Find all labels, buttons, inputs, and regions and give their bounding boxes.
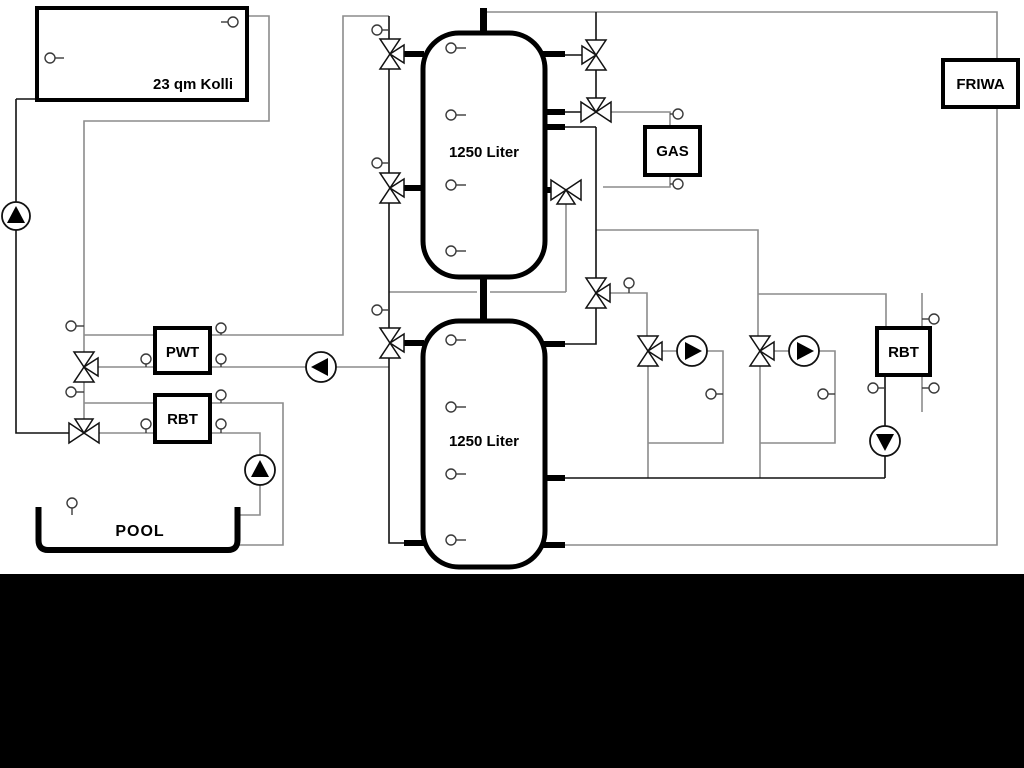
solar-pump (2, 202, 30, 230)
pool-label: POOL (115, 523, 164, 540)
valve-tank-upper-left-top (380, 39, 404, 69)
valve-tank-upper-left-mid (380, 173, 404, 203)
sensor-rbt-right-return (868, 383, 886, 393)
buffer-tank-lower: 1250 Liter (423, 321, 545, 567)
gas-boiler: GAS (645, 127, 700, 175)
sensor-gas-flow (670, 109, 683, 119)
sensor-rbt-top-right (216, 390, 226, 403)
sensor-gas-return (670, 179, 683, 189)
sensor-valve-b (372, 158, 389, 168)
solar-collector: 23 qm Kolli (37, 8, 247, 100)
sensor-pwt-top-right (216, 323, 226, 335)
dhw-pipe (486, 12, 997, 545)
valve-pwt (74, 352, 98, 382)
sensor-pwt-bottom-right (216, 354, 226, 367)
valve-circuit-1 (638, 336, 662, 366)
heating-schematic: 1250 Liter 1250 Liter 23 qm Kolli GAS FR… (0, 0, 1024, 768)
sensor-rbt-bottom-right (216, 419, 226, 433)
sensor-circuit-2 (818, 389, 835, 399)
friwa-label: FRIWA (956, 76, 1004, 93)
collector-label: 23 qm Kolli (153, 76, 233, 93)
sensor-pool (67, 498, 77, 515)
left-valve-column (389, 16, 404, 543)
sensor-circuit-feed (624, 278, 634, 293)
letterbox-bar (0, 574, 1024, 768)
buffer-tank-upper: 1250 Liter (423, 33, 545, 277)
sensor-pwt-bottom-left (141, 354, 151, 367)
pool-pump (245, 455, 275, 485)
heating-circuit-2-pump (789, 336, 819, 366)
sensor-pwt-column (66, 321, 84, 331)
sensor-valve-c (372, 305, 389, 315)
sensor-circuit-1 (706, 389, 723, 399)
rbt-right-pump (870, 426, 900, 456)
solar-left-pipe (16, 99, 70, 433)
valve-tank-lower-left (380, 328, 404, 358)
valve-circuit-feed (586, 278, 610, 308)
sensor-rbt-column (66, 387, 84, 397)
gas-label: GAS (656, 143, 689, 160)
rbt-right-label: RBT (888, 344, 919, 361)
pwt-label: PWT (166, 344, 199, 361)
bottom-return-pipe (565, 375, 885, 478)
valve-tank-upper-right-top (582, 40, 606, 70)
valve-gas-flow (581, 98, 611, 122)
heating-circuit-1-pump (677, 336, 707, 366)
rbt-right-heat-exchanger: RBT (877, 328, 930, 375)
schematic-page: 1250 Liter 1250 Liter 23 qm Kolli GAS FR… (0, 0, 1024, 768)
pwt-heat-exchanger: PWT (155, 328, 210, 373)
sensor-rbt-bottom-left (141, 419, 151, 433)
circuit-feed-pipes (596, 230, 886, 336)
valve-circuit-2 (750, 336, 774, 366)
tank-upper-label: 1250 Liter (449, 144, 519, 161)
sensor-rbt-right-sec-top (922, 314, 939, 324)
rbt-left-label: RBT (167, 411, 198, 428)
tank-lower-label: 1250 Liter (449, 433, 519, 450)
circuit2-loop (760, 351, 835, 478)
pwt-charge-pump (306, 352, 336, 382)
sensor-valve-a (372, 25, 389, 35)
circuit1-loop (648, 351, 723, 478)
valve-gas-return (551, 180, 581, 204)
rbt-left-heat-exchanger: RBT (155, 395, 210, 442)
pool: POOL (39, 507, 238, 550)
valve-rbt-left (69, 419, 99, 443)
sensor-rbt-right-sec-bottom (922, 383, 939, 393)
friwa-station: FRIWA (943, 60, 1018, 107)
